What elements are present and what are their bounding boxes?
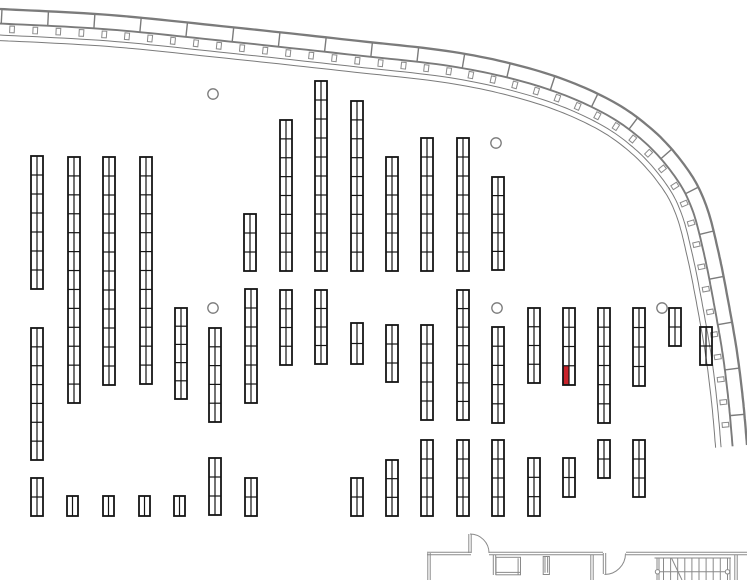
facade-tick (658, 165, 666, 173)
column-marker (491, 138, 501, 148)
facade-tick (512, 81, 518, 89)
column-marker (657, 303, 667, 313)
facade-tick (309, 52, 314, 59)
facade-mullion (718, 322, 732, 325)
shelf-unit-43 (633, 440, 645, 497)
store-floor-plan (0, 0, 747, 580)
shelf-unit-21 (351, 101, 363, 271)
facade-tick (687, 220, 695, 226)
shelf-unit-8 (140, 157, 152, 384)
facade-tick (355, 57, 360, 64)
shelf-unit-36 (528, 308, 540, 383)
shelf-unit-3 (31, 478, 43, 516)
shelf-unit-28 (421, 325, 433, 420)
facade-mullion (725, 368, 739, 370)
facade-tick (717, 377, 724, 382)
facade-tick (698, 264, 705, 270)
facade-tick (490, 76, 496, 83)
shelf-unit-12 (209, 328, 221, 422)
shelf-unit-38 (563, 308, 575, 385)
back-rooms (427, 534, 747, 580)
facade-tick (702, 286, 709, 292)
facade-tick (612, 123, 619, 131)
facade-arc (0, 24, 733, 447)
facade-tick (124, 33, 129, 40)
facade-mullion (371, 42, 373, 56)
facade-mullion (186, 22, 188, 36)
shelf-unit-35 (492, 440, 504, 516)
facade-mullion (278, 32, 280, 46)
facade-tick (680, 200, 688, 207)
facade-tick (216, 42, 221, 49)
facade-tick (102, 31, 107, 38)
shelf-unit-16 (245, 478, 257, 516)
facade-tick (424, 65, 429, 72)
facade-tick (79, 30, 84, 37)
facade-tick (170, 37, 175, 44)
facade-tick (286, 50, 291, 57)
shelf-unit-19 (315, 81, 327, 271)
shelf-unit-39 (563, 458, 575, 497)
facade-tick (554, 94, 561, 102)
facade-mullion (629, 118, 638, 130)
shelf-unit-1 (31, 156, 43, 289)
shelf-unit-9 (139, 496, 150, 516)
shelf-unit-26 (386, 460, 398, 516)
shelf-unit-29 (421, 440, 433, 516)
shelf-unit-23 (351, 478, 363, 516)
shelf-unit-31 (457, 290, 469, 420)
shelf-unit-7 (103, 496, 114, 516)
shelf-unit-37 (528, 458, 540, 516)
shelf-unit-40 (598, 308, 610, 423)
facade-tick (263, 47, 268, 54)
shelf-unit-5 (67, 496, 78, 516)
facade-tick (645, 149, 653, 157)
facade-mullion (232, 27, 234, 41)
facade-tick (378, 60, 383, 67)
facade-mullion (550, 76, 555, 90)
shelf-unit-27 (421, 138, 433, 271)
shelf-unit-10 (175, 308, 187, 399)
wall-stub (543, 557, 549, 575)
stair-break-line (672, 558, 683, 580)
floor-plan-svg (0, 0, 747, 580)
facade-tick (468, 71, 474, 78)
facade-mullion (94, 14, 95, 28)
facade-mullion (661, 149, 672, 159)
facade-tick (714, 354, 721, 360)
column-marker (208, 303, 218, 313)
stair-path-end (655, 570, 659, 574)
shelf-unit-17 (280, 120, 292, 271)
shelf-unit-13 (209, 458, 221, 515)
shelf-unit-4 (68, 157, 80, 403)
facade-mullion (1, 9, 2, 23)
column-marker (492, 303, 502, 313)
facade-mullion (685, 187, 698, 194)
shelf-unit-15 (245, 289, 257, 403)
facade-mullion (325, 37, 327, 51)
shelf-unit-30 (457, 138, 469, 271)
facade-tick (56, 28, 61, 35)
facade-tick (574, 102, 581, 110)
facade-mullion (700, 231, 714, 234)
stair-path-end (725, 570, 729, 574)
facade-tick (33, 27, 38, 34)
column-markers (208, 89, 667, 313)
shelf-units (31, 81, 712, 516)
shelf-unit-6 (103, 157, 115, 385)
facade-tick (722, 422, 729, 427)
facade-mullion (140, 18, 141, 32)
door-swing-arc (605, 554, 626, 575)
shelf-unit-41 (598, 440, 610, 478)
shelf-unit-2 (31, 328, 43, 460)
facade-tick (671, 182, 679, 190)
facade-tick (693, 242, 701, 248)
shelf-unit-44 (669, 308, 681, 346)
shelf-unit-14 (244, 214, 256, 271)
shelf-unit-24 (386, 157, 398, 271)
facade-mullion (417, 47, 419, 61)
facade-tick (240, 45, 245, 52)
facade-mullion (507, 63, 510, 77)
shelf-unit-34 (492, 327, 504, 423)
shelf-unit-18 (280, 290, 292, 365)
shelf-unit-32 (457, 440, 469, 516)
facade-mullion (592, 94, 598, 107)
facade-mullion (709, 276, 723, 279)
shelf-unit-11 (174, 496, 185, 516)
facade-tick (401, 62, 406, 69)
door-swing-arc (470, 534, 489, 553)
highlighted-location-marker (563, 366, 569, 385)
facade-mullion (462, 54, 464, 68)
facade-tick (193, 40, 198, 47)
facade-mullion (730, 414, 744, 415)
facade-tick (332, 55, 337, 62)
facade-tick (147, 35, 152, 42)
shelf-unit-33 (492, 177, 504, 270)
facade-tick (706, 309, 713, 315)
facade-tick (629, 135, 637, 143)
facade-curve (0, 9, 747, 448)
shelf-unit-25 (386, 325, 398, 382)
facade-mullion (48, 11, 49, 25)
shelf-unit-22 (351, 323, 363, 364)
shelf-unit-42 (633, 308, 645, 386)
column-marker (208, 89, 218, 99)
facade-tick (720, 400, 727, 405)
shelf-unit-20 (315, 290, 327, 364)
facade-tick (533, 87, 539, 95)
facade-tick (10, 26, 15, 33)
facade-tick (446, 68, 452, 75)
facade-tick (594, 112, 601, 120)
